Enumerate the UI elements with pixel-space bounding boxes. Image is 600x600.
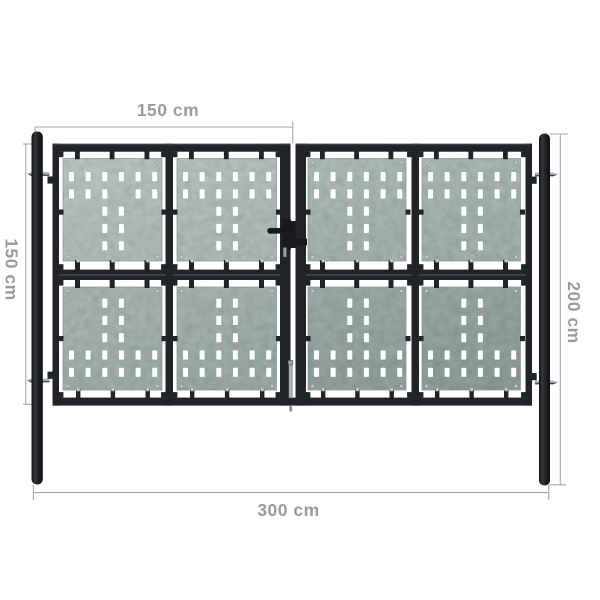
svg-text:150 cm: 150 cm	[2, 238, 22, 300]
svg-text:150 cm: 150 cm	[137, 100, 199, 120]
svg-text:300 cm: 300 cm	[257, 500, 319, 520]
svg-text:200 cm: 200 cm	[564, 281, 584, 343]
